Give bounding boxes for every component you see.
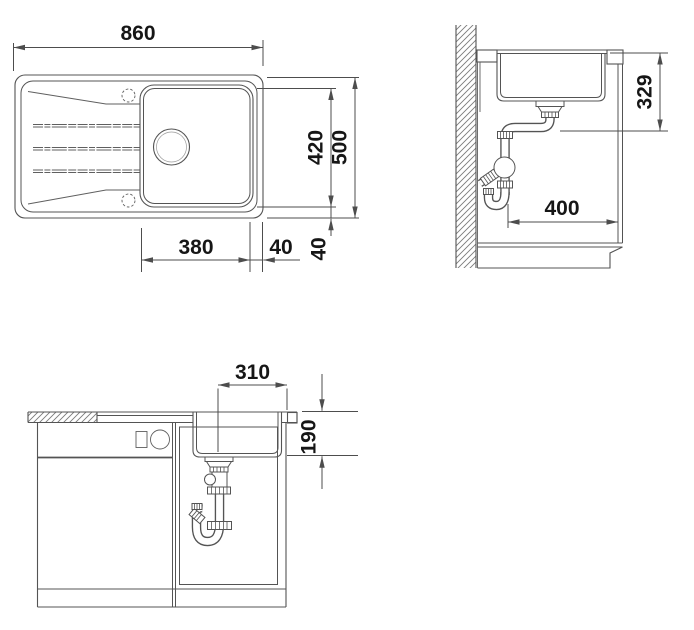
cleanout-plug	[205, 474, 216, 485]
sink-technical-drawing: 860 420 500 40 380 40	[0, 0, 694, 630]
dim-label-400: 400	[544, 197, 579, 220]
dim-label-329: 329	[634, 74, 657, 109]
dim-label-500: 500	[329, 130, 352, 165]
front-drain-flange	[205, 457, 233, 462]
trap-bulb	[494, 157, 515, 178]
dim-label-420: 420	[305, 130, 328, 165]
drain-flange	[536, 101, 564, 107]
page: { "drawing": { "plan": { "dims": { "over…	[0, 0, 694, 630]
drawing-background	[0, 0, 694, 630]
dim-label-40-vertical: 40	[308, 237, 331, 260]
worktop-hatch-left	[28, 412, 97, 423]
wall-hatch	[456, 25, 476, 268]
dim-label-40-horizontal: 40	[269, 236, 292, 259]
dim-label-310: 310	[235, 361, 270, 384]
dim-label-380: 380	[178, 236, 213, 259]
dim-label-860: 860	[120, 22, 155, 45]
dim-label-190: 190	[298, 419, 321, 454]
